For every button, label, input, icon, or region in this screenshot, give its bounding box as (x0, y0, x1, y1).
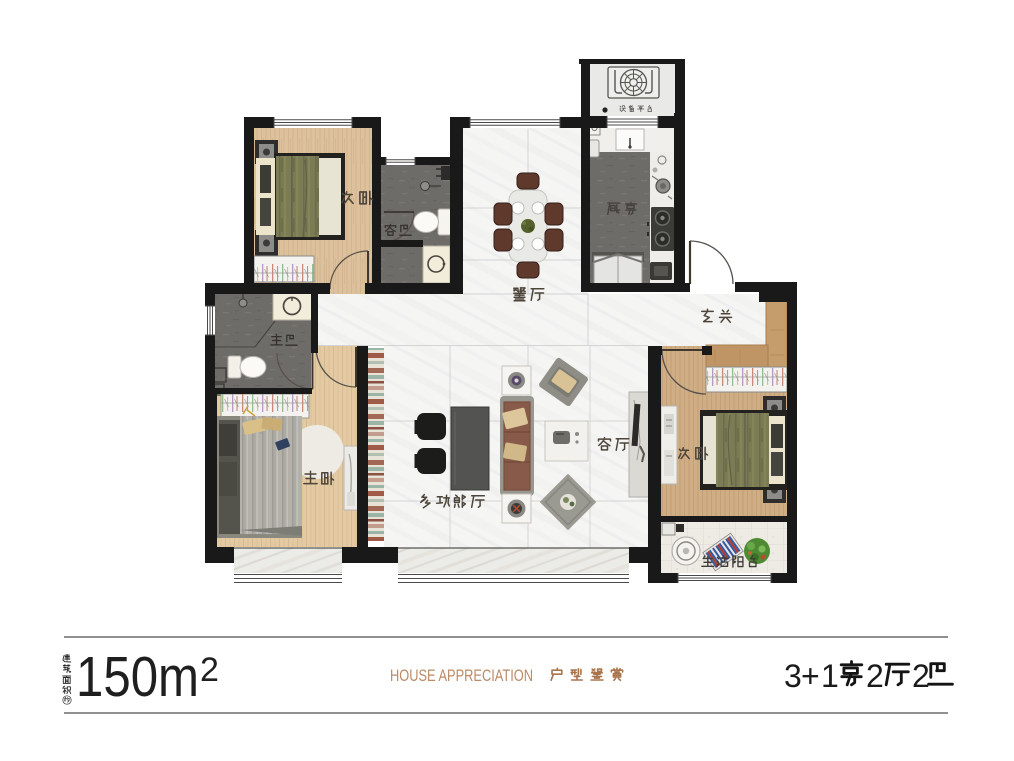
svg-text:2: 2 (866, 658, 884, 694)
svg-text:2: 2 (912, 658, 930, 694)
svg-text:2: 2 (200, 651, 219, 689)
svg-text:+: + (801, 658, 820, 694)
svg-text:3: 3 (784, 658, 802, 694)
svg-text:HOUSE APPRECIATION: HOUSE APPRECIATION (390, 667, 533, 685)
svg-text:150m: 150m (76, 645, 199, 709)
svg-text:1: 1 (821, 658, 839, 694)
